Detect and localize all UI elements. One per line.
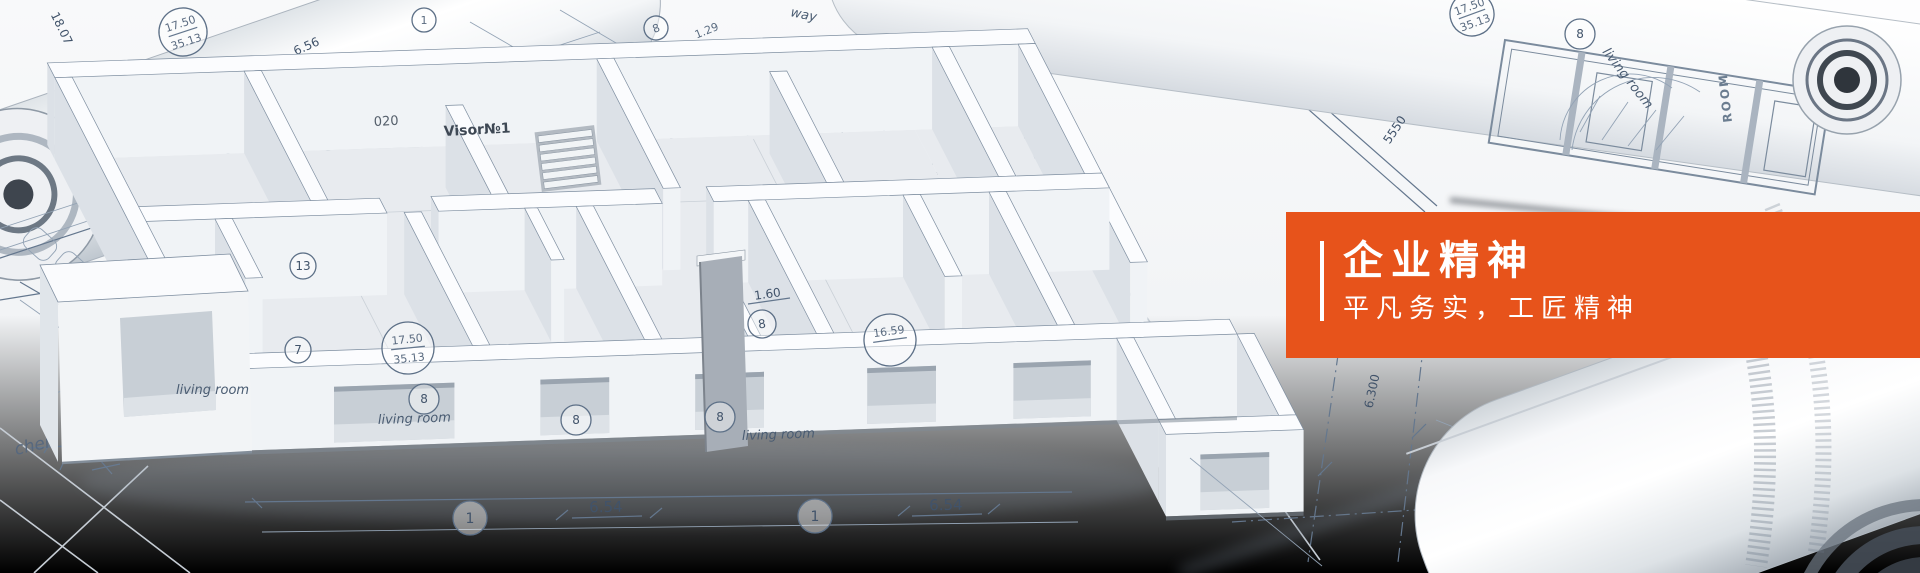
circle-marker: 1 <box>412 8 436 32</box>
model-corner-block: living room <box>40 254 252 463</box>
model-face <box>663 188 680 271</box>
circle-marker: 1 <box>453 501 487 535</box>
model-face <box>551 260 564 342</box>
svg-text:7: 7 <box>294 343 302 357</box>
model-face <box>47 63 55 160</box>
svg-text:1: 1 <box>466 511 475 527</box>
circle-marker: 8 <box>561 405 591 435</box>
svg-text:8: 8 <box>716 410 724 424</box>
hero-banner: 1.25 8.4 chen 18.07 17.50 6 living room … <box>0 0 1920 573</box>
circle-marker: 7 <box>285 337 311 363</box>
circle-marker: 13 <box>290 253 316 279</box>
blueprint-label-living-room: living room <box>176 383 249 398</box>
banner-text-panel: 企业精神 平凡务实，工匠精神 <box>1286 212 1920 358</box>
model-face <box>1200 490 1269 511</box>
svg-text:8: 8 <box>420 392 428 406</box>
svg-text:1: 1 <box>811 509 820 525</box>
svg-text:1: 1 <box>421 14 428 27</box>
model-face <box>1013 398 1090 419</box>
svg-text:8: 8 <box>1576 27 1584 41</box>
circle-marker: 8 <box>705 402 735 432</box>
blueprint-label: 6.54 <box>589 498 623 517</box>
blueprint-label: 6.54 <box>929 496 963 515</box>
svg-text:13: 13 <box>295 259 310 273</box>
banner-subtitle: 平凡务实，工匠精神 <box>1343 295 1920 321</box>
model-face <box>867 404 936 425</box>
blueprint-label: 020 <box>373 114 399 130</box>
blueprint-label-living-room: living room <box>742 426 816 444</box>
model-staircase <box>535 125 602 192</box>
banner-accent-bar: 企业精神 平凡务实，工匠精神 <box>1320 241 1920 321</box>
blueprint-label-living-room: living room <box>378 410 452 428</box>
roll-end-spiral <box>1793 26 1901 134</box>
banner-title: 企业精神 <box>1343 241 1920 281</box>
circle-marker: 8 <box>1565 19 1595 49</box>
model-face <box>1158 420 1166 517</box>
circle-marker: 8 <box>409 384 439 414</box>
svg-text:8: 8 <box>572 413 580 427</box>
circle-marker: 1 <box>798 499 832 533</box>
